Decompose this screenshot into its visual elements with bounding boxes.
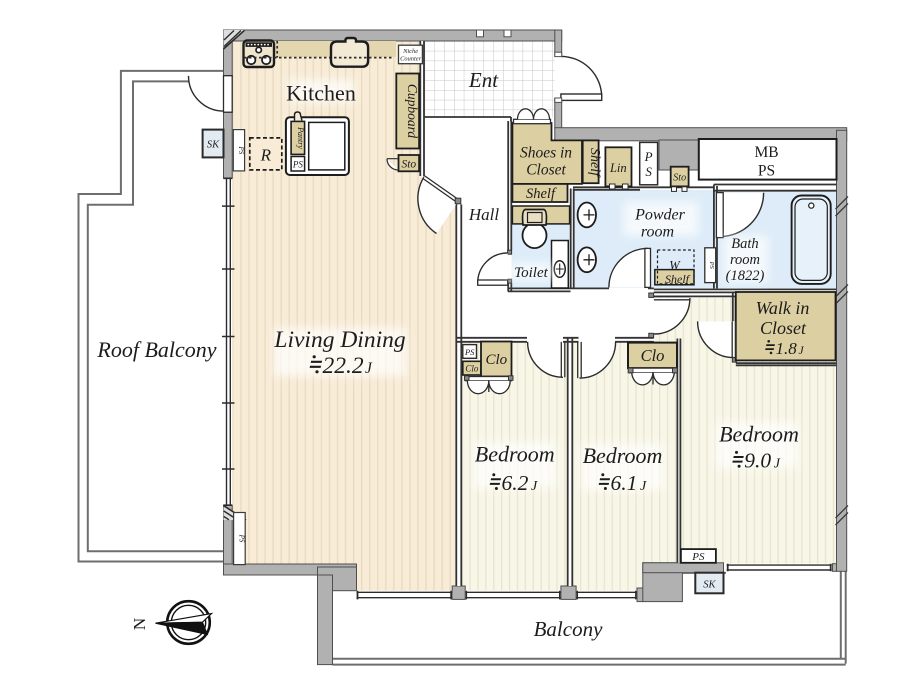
- svg-text:1.8: 1.8: [776, 339, 798, 358]
- svg-text:Sto: Sto: [673, 173, 686, 184]
- svg-text:PS: PS: [758, 163, 775, 180]
- svg-text:Bath: Bath: [731, 236, 758, 252]
- svg-text:22.2: 22.2: [323, 353, 364, 379]
- svg-text:Roof Balcony: Roof Balcony: [96, 337, 216, 362]
- svg-text:Shelf: Shelf: [665, 272, 691, 286]
- svg-text:PS: PS: [464, 347, 475, 357]
- svg-text:J: J: [774, 457, 781, 472]
- svg-text:Balcony: Balcony: [534, 617, 603, 641]
- svg-text:Hall: Hall: [468, 205, 500, 224]
- svg-text:Sto: Sto: [401, 158, 416, 170]
- svg-text:N: N: [130, 618, 149, 630]
- svg-text:J: J: [531, 479, 538, 494]
- svg-text:J: J: [640, 479, 647, 494]
- svg-text:W: W: [669, 259, 681, 273]
- svg-text:J: J: [799, 345, 805, 357]
- svg-text:6.2: 6.2: [502, 471, 529, 495]
- svg-text:PS: PS: [237, 146, 245, 155]
- svg-text:room: room: [730, 252, 760, 268]
- svg-text:6.1: 6.1: [611, 471, 638, 495]
- svg-text:Shelf: Shelf: [526, 186, 557, 202]
- svg-text:P: P: [644, 149, 653, 164]
- svg-text:Niche: Niche: [402, 48, 418, 55]
- svg-text:9.0: 9.0: [744, 449, 771, 473]
- svg-text:Bedroom: Bedroom: [475, 442, 555, 467]
- svg-text:SK: SK: [207, 140, 220, 151]
- svg-text:PS: PS: [708, 261, 715, 270]
- svg-text:Closet: Closet: [526, 162, 566, 179]
- svg-text:PS: PS: [292, 159, 303, 169]
- svg-text:Clo: Clo: [465, 364, 479, 374]
- svg-text:Pantry: Pantry: [296, 126, 305, 149]
- svg-text:PS: PS: [691, 551, 705, 563]
- svg-text:Lin: Lin: [609, 161, 627, 175]
- svg-text:Bedroom: Bedroom: [583, 443, 663, 468]
- svg-text:Kitchen: Kitchen: [286, 81, 356, 106]
- svg-text:J: J: [365, 360, 373, 377]
- svg-text:(1822): (1822): [726, 268, 765, 284]
- svg-text:Cupboard: Cupboard: [405, 84, 420, 139]
- svg-text:PS: PS: [237, 534, 245, 543]
- svg-text:Counter: Counter: [400, 55, 421, 62]
- svg-text:Shelf: Shelf: [587, 148, 602, 178]
- svg-text:Living Dining: Living Dining: [273, 327, 405, 353]
- svg-text:Closet: Closet: [760, 318, 807, 338]
- svg-text:room: room: [641, 224, 674, 241]
- svg-text:Clo: Clo: [641, 346, 665, 365]
- svg-text:SK: SK: [703, 579, 716, 590]
- svg-text:Powder: Powder: [634, 207, 686, 224]
- svg-text:MB: MB: [754, 144, 778, 161]
- svg-text:Ent: Ent: [468, 68, 499, 92]
- svg-text:Walk in: Walk in: [756, 298, 810, 318]
- svg-text:Clo: Clo: [485, 352, 507, 368]
- svg-text:Bedroom: Bedroom: [719, 422, 799, 447]
- svg-text:Shoes in: Shoes in: [520, 145, 572, 162]
- svg-text:Toilet: Toilet: [514, 265, 548, 281]
- svg-text:R: R: [260, 146, 272, 165]
- svg-text:S: S: [645, 164, 652, 179]
